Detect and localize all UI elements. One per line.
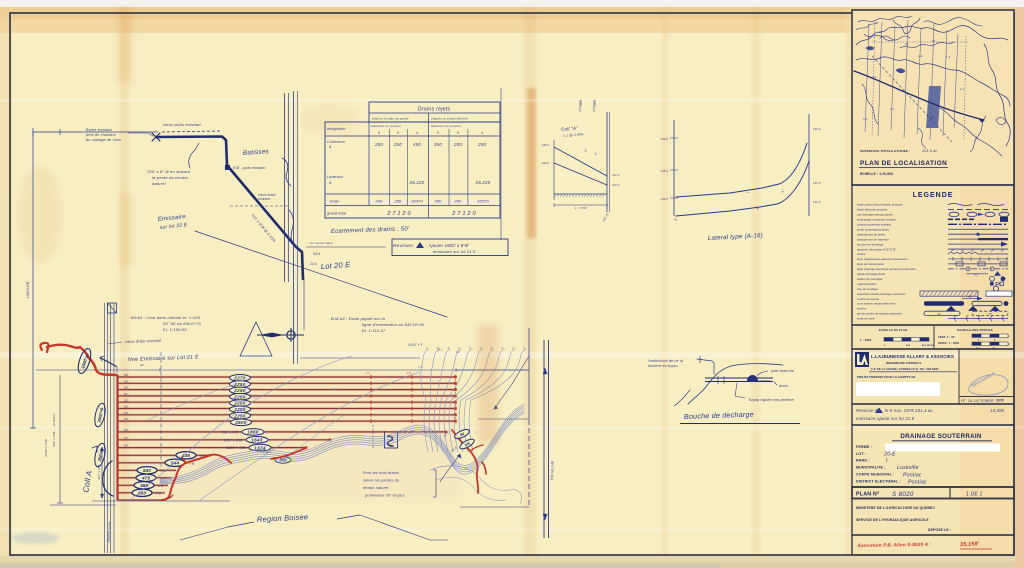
svg-text:souche: souche — [857, 307, 867, 311]
svg-text:drain: drain — [779, 384, 788, 388]
svg-text:grand total: grand total — [327, 212, 346, 216]
svg-text:la pente du terrain: la pente du terrain — [152, 175, 189, 180]
svg-text:PLAN Nº: PLAN Nº — [856, 492, 879, 498]
svg-text:du captage de l'eau: du captage de l'eau — [86, 138, 121, 142]
svg-text:tel. terrain ligne: tel. terrain ligne — [310, 241, 333, 245]
svg-text:540: 540 — [143, 468, 151, 474]
svg-text:El. 1:100.00: El. 1:100.00 — [163, 327, 187, 332]
svg-text:2250: 2250 — [233, 394, 246, 399]
svg-text:250: 250 — [393, 142, 402, 147]
svg-text:4"Ø: 4"Ø — [158, 484, 164, 488]
svg-text:l'emboiture de ce la: l'emboiture de ce la — [648, 359, 683, 363]
svg-text:450: 450 — [413, 142, 421, 147]
svg-text:48: 48 — [124, 373, 128, 377]
svg-text:142.6: 142.6 — [612, 173, 620, 177]
svg-text:53: 53 — [124, 405, 128, 409]
svg-text:2 7 1 2 0: 2 7 1 2 0 — [451, 211, 476, 217]
svg-text:LEGENDE: LEGENDE — [913, 192, 954, 199]
svg-text:le 8 nov. 1978 101.4 ac: le 8 nov. 1978 101.4 ac — [885, 408, 934, 413]
svg-text:ECHELLE : 1:20,000: ECHELLE : 1:20,000 — [860, 172, 893, 176]
svg-text:Tuyau rigide non perfore: Tuyau rigide non perfore — [748, 398, 794, 402]
svg-text:2: 2 — [425, 346, 428, 350]
svg-text:3-4: 3-4 — [863, 117, 868, 121]
svg-text:34.6: 34.6 — [579, 100, 583, 106]
svg-text:101.4 ac: 101.4 ac — [922, 149, 937, 153]
svg-text:140.8: 140.8 — [612, 183, 620, 187]
svg-text:Revision #: Revision # — [856, 408, 878, 413]
svg-text:designation: designation — [327, 127, 346, 131]
svg-text:24.6: 24.6 — [309, 262, 317, 266]
svg-text:bouche de decharge: bouche de decharge — [857, 242, 884, 246]
svg-text:trou de sondage: trou de sondage — [857, 287, 878, 291]
svg-text:diametre des drains 4",5",6",8: diametre des drains 4",5",6",8" — [857, 247, 896, 251]
svg-text:5: 5 — [378, 131, 380, 135]
svg-text:Pontiac: Pontiac — [903, 473, 922, 479]
svg-text:COMTE MUNICIPAL :: COMTE MUNICIPAL : — [856, 473, 894, 477]
svg-text:d'apres le plan du genie: d'apres le plan du genie — [372, 117, 409, 121]
svg-text:56: 56 — [124, 428, 128, 432]
svg-text:superficie etudiee,drainage so: superficie etudiee,drainage souterrain — [857, 292, 906, 296]
svg-text:changement de pente: changement de pente — [857, 232, 885, 236]
svg-text:A: A — [328, 181, 332, 185]
svg-text:lumiere du tuyau: lumiere du tuyau — [648, 364, 678, 368]
svg-text:ECHELLE DES PROFILS: ECHELLE DES PROFILS — [957, 328, 992, 332]
svg-text:2270: 2270 — [233, 376, 246, 381]
svg-text:20-E: 20-E — [883, 452, 896, 458]
svg-text:142.0: 142.0 — [542, 161, 550, 165]
svg-text:26,220: 26,220 — [475, 180, 491, 185]
svg-text:26470: 26470 — [410, 200, 423, 204]
svg-text:110: 110 — [332, 387, 337, 391]
svg-text:145.0: 145.0 — [661, 169, 669, 173]
svg-text:regard,puisard: regard,puisard — [857, 282, 876, 286]
svg-text:1 DE 1: 1 DE 1 — [966, 492, 983, 498]
svg-text:150.0: 150.0 — [661, 137, 669, 141]
svg-text:DISTRICT ELECTORAL :: DISTRICT ELECTORAL : — [856, 480, 901, 484]
svg-text:LE: LE — [961, 399, 965, 403]
svg-text:52: 52 — [124, 398, 128, 402]
svg-text:1-4: 1-4 — [872, 75, 877, 79]
svg-text:Borne existant: Borne existant — [86, 128, 113, 132]
svg-text:58: 58 — [124, 444, 128, 448]
svg-text:51: 51 — [124, 392, 128, 396]
svg-text:B1/#1 : Clou dans chemin el. 1: B1/#1 : Clou dans chemin el. 1:105 — [131, 315, 201, 320]
svg-text:2.3: 2.3 — [365, 372, 370, 375]
svg-text:limite de lotes: limite de lotes — [857, 317, 875, 321]
svg-text:terrain naturel: terrain naturel — [363, 486, 388, 490]
svg-text:55: 55 — [124, 417, 128, 421]
svg-text:ligne telephonique aerienne,so: ligne telephonique aerienne,souterraine — [857, 257, 908, 261]
svg-text:200: 200 — [374, 142, 383, 147]
svg-text:embrayage souterrain existant: embrayage souterrain existant — [857, 218, 896, 222]
svg-text:4"Ø: 4"Ø — [156, 491, 162, 495]
svg-text:108: 108 — [418, 365, 424, 369]
svg-text:tas de roches de surface,enter: tas de roches de surface,enterrees — [857, 312, 902, 316]
svg-text:2: 2 — [457, 346, 460, 350]
svg-text:ECHELLE DU PLAN: ECHELLE DU PLAN — [879, 328, 908, 332]
svg-text:26,220: 26,220 — [409, 180, 425, 185]
svg-text:jonee souterrain,propose: jonee souterrain,propose — [856, 227, 889, 231]
svg-text:station de pompage: station de pompage — [857, 277, 883, 281]
svg-text:2-6: 2-6 — [929, 115, 935, 119]
svg-text:naturel: naturel — [152, 181, 166, 186]
svg-text:54: 54 — [124, 411, 128, 415]
svg-text:2-1: 2-1 — [959, 87, 965, 91]
svg-text:Luskville: Luskville — [897, 465, 919, 471]
svg-text:26 OCTOBRE: 26 OCTOBRE — [967, 399, 994, 403]
svg-text:suivre les pentes du: suivre les pentes du — [363, 479, 399, 483]
svg-text:144.0: 144.0 — [542, 143, 550, 147]
svg-text:4: 4 — [416, 131, 418, 135]
svg-text:57: 57 — [124, 436, 128, 440]
svg-text:2.6: 2.6 — [406, 372, 411, 375]
svg-text:142.0: 142.0 — [813, 200, 821, 204]
svg-text:Revision: Revision — [393, 243, 413, 249]
svg-text:Lateraux: Lateraux — [327, 175, 344, 179]
svg-text:cas drainage,etang,propose: cas drainage,etang,propose — [857, 213, 893, 217]
svg-text:courbe de niveau: courbe de niveau — [857, 297, 880, 301]
svg-text:350' x 4"Ø ... 12 drains: 350' x 4"Ø ... 12 drains — [52, 413, 56, 446]
svg-text:joint etanche: joint etanche — [770, 369, 794, 373]
svg-text:350: 350 — [435, 200, 443, 204]
svg-text:El. 1:112.07: El. 1:112.07 — [362, 328, 386, 333]
svg-text:200: 200 — [453, 142, 462, 147]
svg-text:1643: 1643 — [251, 438, 263, 443]
svg-text:2350'±4'Ø: 2350'±4'Ø — [26, 281, 30, 299]
svg-text:6"Ø - puits existant: 6"Ø - puits existant — [233, 166, 266, 170]
svg-text:34.6: 34.6 — [313, 252, 320, 256]
svg-text:700' x 8" Ø en suivant: 700' x 8" Ø en suivant — [147, 169, 191, 174]
svg-text:INGENIEURS CONSEILS: INGENIEURS CONSEILS — [886, 361, 921, 365]
svg-text:changement de diametre: changement de diametre — [857, 237, 889, 241]
svg-text:5: 5 — [437, 131, 439, 135]
svg-text:2250: 2250 — [233, 407, 246, 412]
svg-text:zone boisee,verger,arbre seul: zone boisee,verger,arbre seul — [857, 302, 895, 306]
svg-text:2: 2 — [522, 346, 525, 350]
svg-text:—: — — [745, 190, 750, 194]
svg-text:40: 40 — [937, 312, 941, 316]
svg-text:2250: 2250 — [233, 388, 246, 393]
svg-text:vieux puits existant: vieux puits existant — [163, 122, 201, 127]
svg-text:emissaire sur lot 21 E: emissaire sur lot 21 E — [433, 249, 476, 254]
svg-text:RANG :: RANG : — [856, 459, 870, 463]
svg-text:1978: 1978 — [996, 399, 1004, 403]
svg-text:1000' x 4"Ø: 1000' x 4"Ø — [223, 438, 242, 442]
svg-text:40: 40 — [968, 295, 972, 299]
svg-text:Rte No 148: Rte No 148 — [550, 461, 555, 480]
svg-text:L = 700': L = 700' — [575, 206, 587, 210]
svg-text:1 : 4800: 1 : 4800 — [860, 338, 872, 342]
svg-text:fosse,cours d'eau existant, pr: fosse,cours d'eau existant, propose — [857, 203, 903, 207]
svg-text:544: 544 — [171, 461, 179, 467]
svg-text:: Ajouter 1800' x 8"Ø: : Ajouter 1800' x 8"Ø — [426, 243, 469, 248]
svg-text:S 8020: S 8020 — [892, 491, 914, 498]
svg-text:75: 75 — [988, 312, 992, 316]
svg-text:2 7 1 2 0: 2 7 1 2 0 — [386, 211, 411, 217]
svg-text:PROJET PREPARE POUR LE COM: PROJET PREPARE POUR LE COMPTE DE — [857, 375, 916, 379]
svg-text:35,158': 35,158' — [960, 541, 980, 548]
svg-text:conduit souterrain existant: conduit souterrain existant — [857, 223, 891, 227]
svg-text:VERT. 1 : 50: VERT. 1 : 50 — [938, 335, 955, 339]
svg-text:2350' x 4: 2350' x 4 — [407, 342, 423, 347]
svg-text:ligne de transmission: ligne de transmission — [857, 262, 885, 266]
svg-text:garde,pompage,chute: garde,pompage,chute — [857, 272, 886, 276]
svg-text:40: 40 — [974, 272, 978, 276]
svg-text:250: 250 — [477, 142, 486, 147]
svg-text:6: 6 — [397, 131, 399, 135]
svg-text:20: 20 — [904, 42, 909, 46]
svg-text:ligne d'etange electrique aeri: ligne d'etange electrique aerienne,soute… — [857, 267, 916, 271]
svg-text:ligne d'orientation au KM 24+0: ligne d'orientation au KM 24+00 — [362, 322, 425, 327]
svg-text:C.P. DE LA SAVANE, GATINEAU: C.P. DE LA SAVANE, GATINEAU P.Q. TEL. 56… — [871, 368, 939, 371]
svg-text:1860: 1860 — [247, 430, 259, 435]
svg-text:LOT :: LOT : — [856, 452, 866, 456]
svg-text:40: 40 — [140, 363, 144, 367]
svg-text:769' x 4"Ø: 769' x 4"Ø — [221, 430, 238, 434]
svg-text:50: 50 — [124, 386, 128, 390]
svg-text:200: 200 — [454, 200, 463, 204]
svg-text:150.0: 150.0 — [813, 127, 821, 131]
svg-text:MUNICIPALITE :: MUNICIPALITE : — [856, 466, 886, 470]
svg-text:49: 49 — [124, 379, 128, 383]
svg-text:existant: existant — [258, 197, 271, 201]
svg-text:19: 19 — [932, 39, 936, 43]
svg-text:P.: P. — [1008, 336, 1010, 338]
svg-text:profondeur 30" et plus: profondeur 30" et plus — [364, 494, 405, 498]
svg-text:emissaire ajoute sur lot 21 E: emissaire ajoute sur lot 21 E — [856, 416, 915, 421]
svg-text:diametre en pouces: diametre en pouces — [371, 124, 401, 128]
svg-text:400: 400 — [906, 344, 911, 347]
svg-text:14,308: 14,308 — [990, 408, 1004, 413]
svg-text:MINISTERE DE L'AGRICULTURE: MINISTERE DE L'AGRICULTURE DU QUEBEC — [856, 506, 935, 510]
svg-text:DRAINAGE SOUTERRAIN: DRAINAGE SOUTERRAIN — [900, 433, 982, 440]
svg-text:Pour les trois drains: Pour les trois drains — [363, 471, 399, 475]
svg-text:350: 350 — [434, 142, 442, 147]
svg-text:21: 21 — [877, 30, 882, 34]
svg-text:FERME :: FERME : — [856, 445, 872, 449]
svg-text:200: 200 — [375, 200, 384, 204]
svg-text:4"Ø: 4"Ø — [161, 469, 167, 473]
svg-text:6: 6 — [457, 131, 459, 135]
svg-text:2250: 2250 — [233, 401, 246, 406]
svg-text:2500: 2500 — [234, 420, 247, 425]
svg-text:800 PIEDS: 800 PIEDS — [922, 345, 935, 347]
svg-text:A: A — [328, 145, 332, 149]
svg-text:4: 4 — [481, 131, 483, 135]
svg-text:L.LAJEUNESSE ALLARY & ASSOC: L.LAJEUNESSE ALLARY & ASSOCIES — [871, 354, 954, 359]
svg-text:Pontiac: Pontiac — [908, 480, 927, 486]
svg-text:pres de chambre: pres de chambre — [85, 133, 116, 137]
svg-text:1-4: 1-4 — [918, 54, 923, 58]
svg-text:112: 112 — [252, 395, 257, 399]
svg-text:1-5: 1-5 — [946, 55, 951, 59]
svg-text:140.0: 140.0 — [661, 197, 669, 201]
svg-text:24.6: 24.6 — [593, 100, 597, 107]
svg-text:550: 550 — [138, 491, 146, 497]
svg-text:SUPERFICIE TOTALE ETUDIEE :: SUPERFICIE TOTALE ETUDIEE : — [860, 149, 910, 153]
svg-text:Drains rejets: Drains rejets — [418, 107, 451, 113]
svg-text:2350' x 4"Ø: 2350' x 4"Ø — [44, 439, 48, 458]
svg-text:total: total — [330, 199, 339, 204]
svg-text:26570: 26570 — [476, 200, 489, 204]
svg-text:145.6: 145.6 — [813, 181, 821, 185]
svg-text:2: 2 — [490, 346, 493, 350]
svg-text:d'apres le projet definitif: d'apres le projet definitif — [431, 117, 469, 121]
svg-text:P.: P. — [1008, 344, 1010, 346]
svg-text:diametre en pouces: diametre en pouces — [431, 124, 461, 128]
svg-text:Collecteur: Collecteur — [327, 140, 346, 144]
svg-text:2250: 2250 — [233, 413, 246, 418]
svg-text:1100' x 4"Ø: 1100' x 4"Ø — [227, 446, 246, 450]
svg-text:2-4: 2-4 — [889, 107, 895, 111]
svg-text:20' SE du KM-0+70: 20' SE du KM-0+70 — [162, 321, 202, 326]
svg-text:B.M.#2 : Drain piquet sur la: B.M.#2 : Drain piquet sur la — [331, 316, 386, 321]
svg-text:475: 475 — [141, 476, 150, 482]
svg-text:PLAN DE LOCALISATION: PLAN DE LOCALISATION — [860, 160, 947, 167]
svg-text:fosse labouree,propose: fosse labouree,propose — [857, 208, 888, 212]
svg-text:SERVICE DE L'HYDRAULIQUE AG: SERVICE DE L'HYDRAULIQUE AGRICOLE — [856, 518, 929, 522]
svg-text:HORIZ. 1 : 4800: HORIZ. 1 : 4800 — [938, 341, 960, 345]
svg-text:cloture: cloture — [857, 252, 866, 256]
svg-text:250: 250 — [394, 200, 403, 204]
svg-text:DEPOSE LE :: DEPOSE LE : — [928, 528, 951, 532]
